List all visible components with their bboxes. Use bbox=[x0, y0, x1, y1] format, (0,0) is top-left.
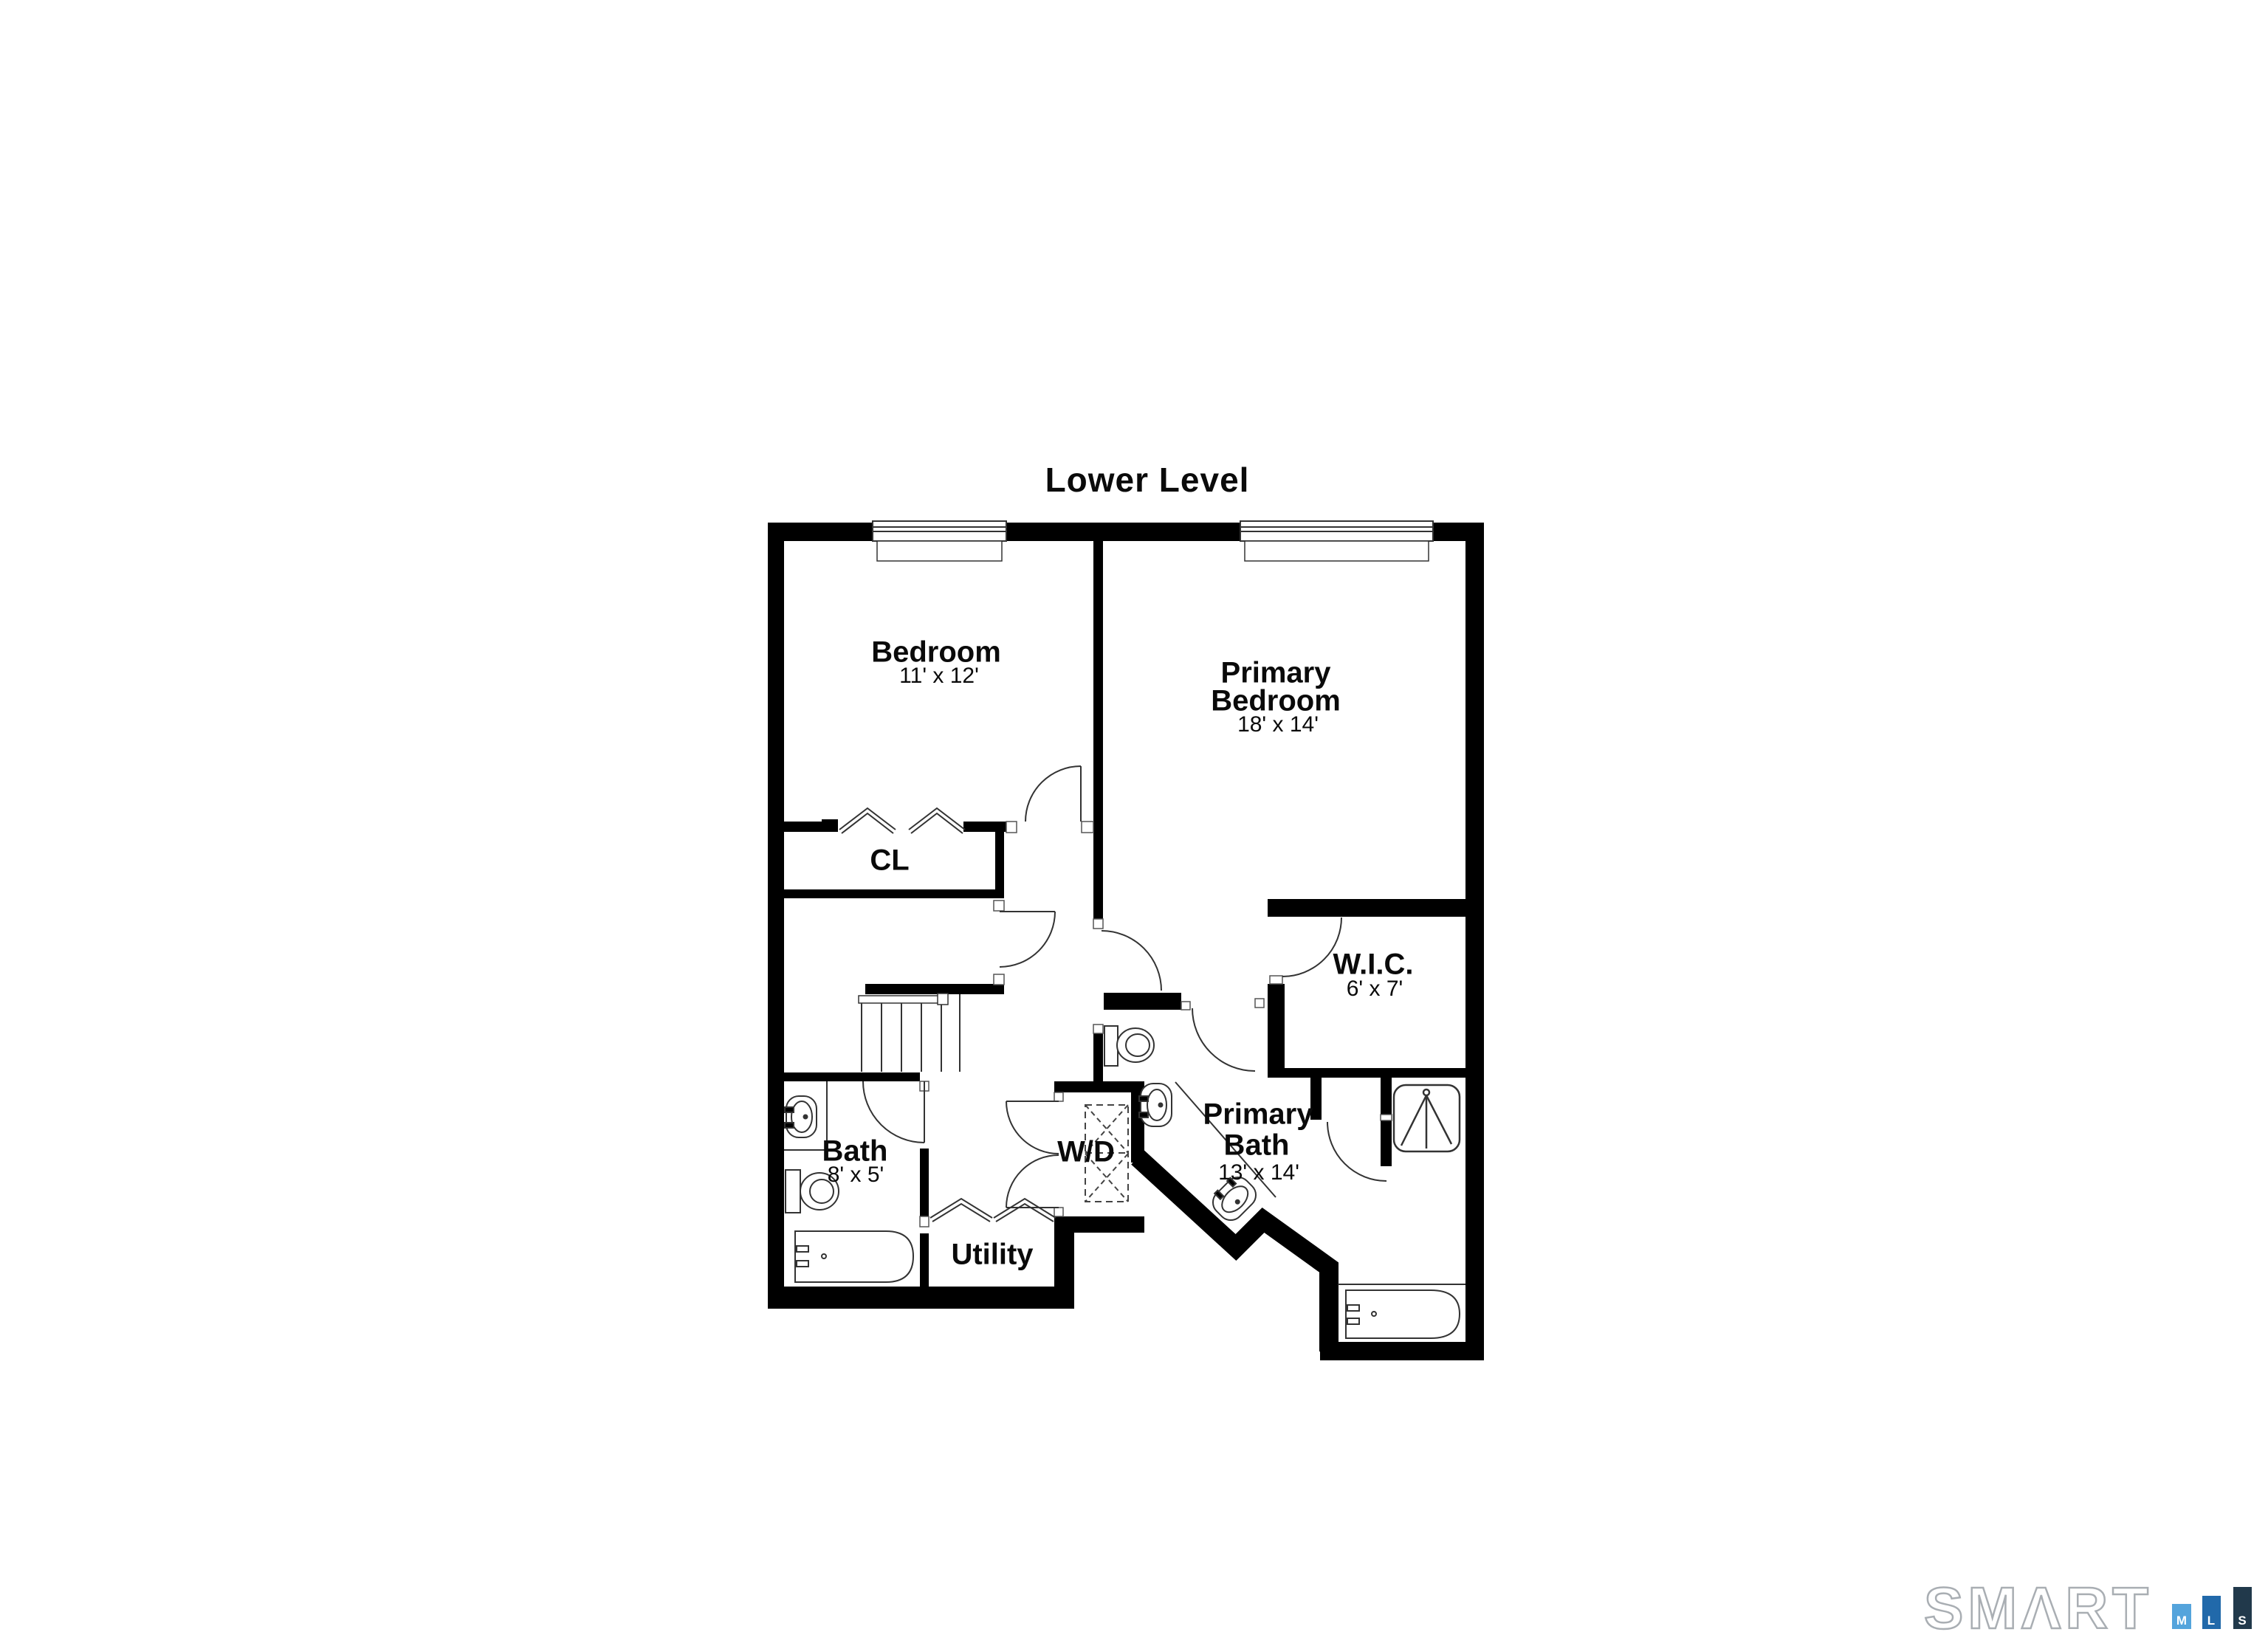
bath-door-arc bbox=[863, 1081, 924, 1143]
floor-plan-drawing: SMΛRT M L S bbox=[0, 0, 2268, 1646]
shower-icon bbox=[1394, 1085, 1460, 1151]
room-dims-wic: 6' x 7' bbox=[1347, 977, 1403, 1002]
page-title: Lower Level bbox=[1045, 460, 1250, 500]
room-dims-bedroom: 11' x 12' bbox=[899, 664, 979, 689]
smart-mls-logo: SMΛRT M L S bbox=[1924, 1575, 2252, 1641]
primary-bath-door-arc bbox=[1192, 1008, 1255, 1071]
room-label-washer-dryer: W/D bbox=[1057, 1136, 1115, 1169]
room-label-primary-bath-line2: Bath bbox=[1224, 1129, 1290, 1163]
wd-door-top-arc bbox=[1006, 1101, 1059, 1154]
hall-door-arc bbox=[1000, 912, 1055, 967]
logo-bar-s-letter: S bbox=[2238, 1614, 2246, 1628]
bedroom-door-arc bbox=[1025, 766, 1081, 822]
room-label-primary-bath-line1: Primary bbox=[1203, 1098, 1313, 1132]
window-icon bbox=[873, 521, 1006, 561]
logo-bar-l-letter: L bbox=[2207, 1614, 2215, 1628]
primary-sink-icon bbox=[1139, 1084, 1172, 1126]
bath-sink-icon bbox=[784, 1081, 827, 1150]
logo-brand-text: SMΛRT bbox=[1924, 1575, 2153, 1641]
hall-bath-door-arc bbox=[1102, 931, 1161, 991]
bathtub-icon bbox=[795, 1231, 913, 1282]
room-label-utility: Utility bbox=[951, 1239, 1033, 1272]
shower-door-arc bbox=[1327, 1122, 1386, 1181]
logo-bar-m-letter: M bbox=[2176, 1614, 2187, 1628]
room-dims-bath: 8' x 5' bbox=[828, 1163, 884, 1188]
primary-toilet-icon bbox=[1104, 1026, 1154, 1066]
primary-bathtub-icon bbox=[1346, 1290, 1460, 1338]
room-dims-primary-bedroom: 18' x 14' bbox=[1237, 712, 1319, 737]
room-dims-primary-bath: 13' x 14' bbox=[1218, 1160, 1299, 1185]
stairs-icon bbox=[859, 994, 960, 1072]
window-icon bbox=[1240, 521, 1433, 561]
room-label-closet: CL bbox=[870, 844, 909, 878]
floor-plan-page: SMΛRT M L S Lower Level Bedroom 11' x 12… bbox=[0, 0, 2268, 1646]
wd-door-bottom-arc bbox=[1006, 1155, 1059, 1208]
